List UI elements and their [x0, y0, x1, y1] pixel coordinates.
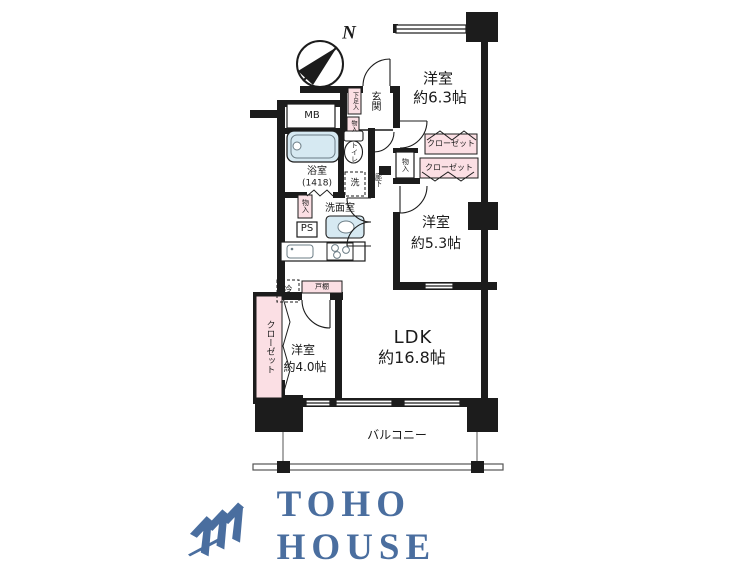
entrance-label: 玄関: [369, 91, 379, 111]
pipe-space-label: PS: [301, 224, 313, 234]
logo-mark-icon: [188, 493, 261, 559]
compass-icon: [297, 41, 343, 87]
bedroom2-size: 約5.3帖: [411, 237, 461, 251]
toho-house-logo: TOHO HOUSE: [188, 492, 580, 560]
column-right-mid: [468, 202, 498, 230]
bathtub-icon: [287, 131, 339, 162]
balcony-label: バルコニー: [367, 429, 427, 441]
compass-north-label: N: [342, 24, 356, 43]
ldk-name: LDK: [394, 329, 433, 347]
sink-icon: [287, 245, 313, 258]
cupboard-label: 戸棚: [315, 284, 329, 291]
bathroom-size: (1418): [302, 180, 332, 189]
floorplan-drawing: [0, 0, 750, 563]
storage-hall-label: 物入: [402, 158, 409, 172]
column-bottom-left: [255, 395, 303, 432]
storage-washroom-label: 物入: [302, 199, 309, 213]
bedroom1-name: 洋室: [423, 72, 453, 87]
bedroom3-door: [302, 300, 330, 328]
bedroom2-door: [400, 186, 427, 213]
closet-bedroom1-label: クローゼット: [427, 140, 475, 148]
meter-box-label: MB: [304, 111, 320, 121]
bedroom2-name: 洋室: [422, 216, 450, 230]
closet-bedroom3-label: クローゼット: [265, 320, 274, 374]
toilet-door: [374, 132, 394, 152]
bedroom3-size: 約4.0帖: [283, 361, 326, 373]
entrance-door: [363, 59, 390, 86]
bedroom1-size: 約6.3帖: [413, 91, 467, 106]
floorplan-page: N 洋室 約6.3帖 クローゼット クローゼット 洋室 約5.3帖 LDK 約1…: [0, 0, 750, 563]
logo-text: TOHO HOUSE: [277, 483, 580, 563]
ldk-size: 約16.8帖: [378, 350, 446, 366]
closet-bedroom2-label: クローゼット: [425, 164, 473, 172]
toilet-label: トイレ: [351, 142, 358, 163]
bathroom-name: 浴室: [307, 167, 327, 177]
column-bottom-right: [467, 398, 498, 432]
storage-entrance-label: 物入: [350, 120, 356, 132]
kitchen-counter-icon: [281, 242, 365, 261]
washbasin-icon: [326, 216, 364, 238]
shoe-cabinet-label: 下足入: [352, 92, 358, 110]
bedroom3-name: 洋室: [291, 344, 315, 356]
bedroom1-door: [400, 121, 427, 148]
fridge-label: 冷: [283, 287, 292, 296]
column-top-right: [466, 12, 498, 42]
washer-label: 洗: [350, 180, 359, 189]
washroom-label: 洗面室: [325, 204, 355, 214]
hallway-label: 廊下: [375, 173, 382, 187]
